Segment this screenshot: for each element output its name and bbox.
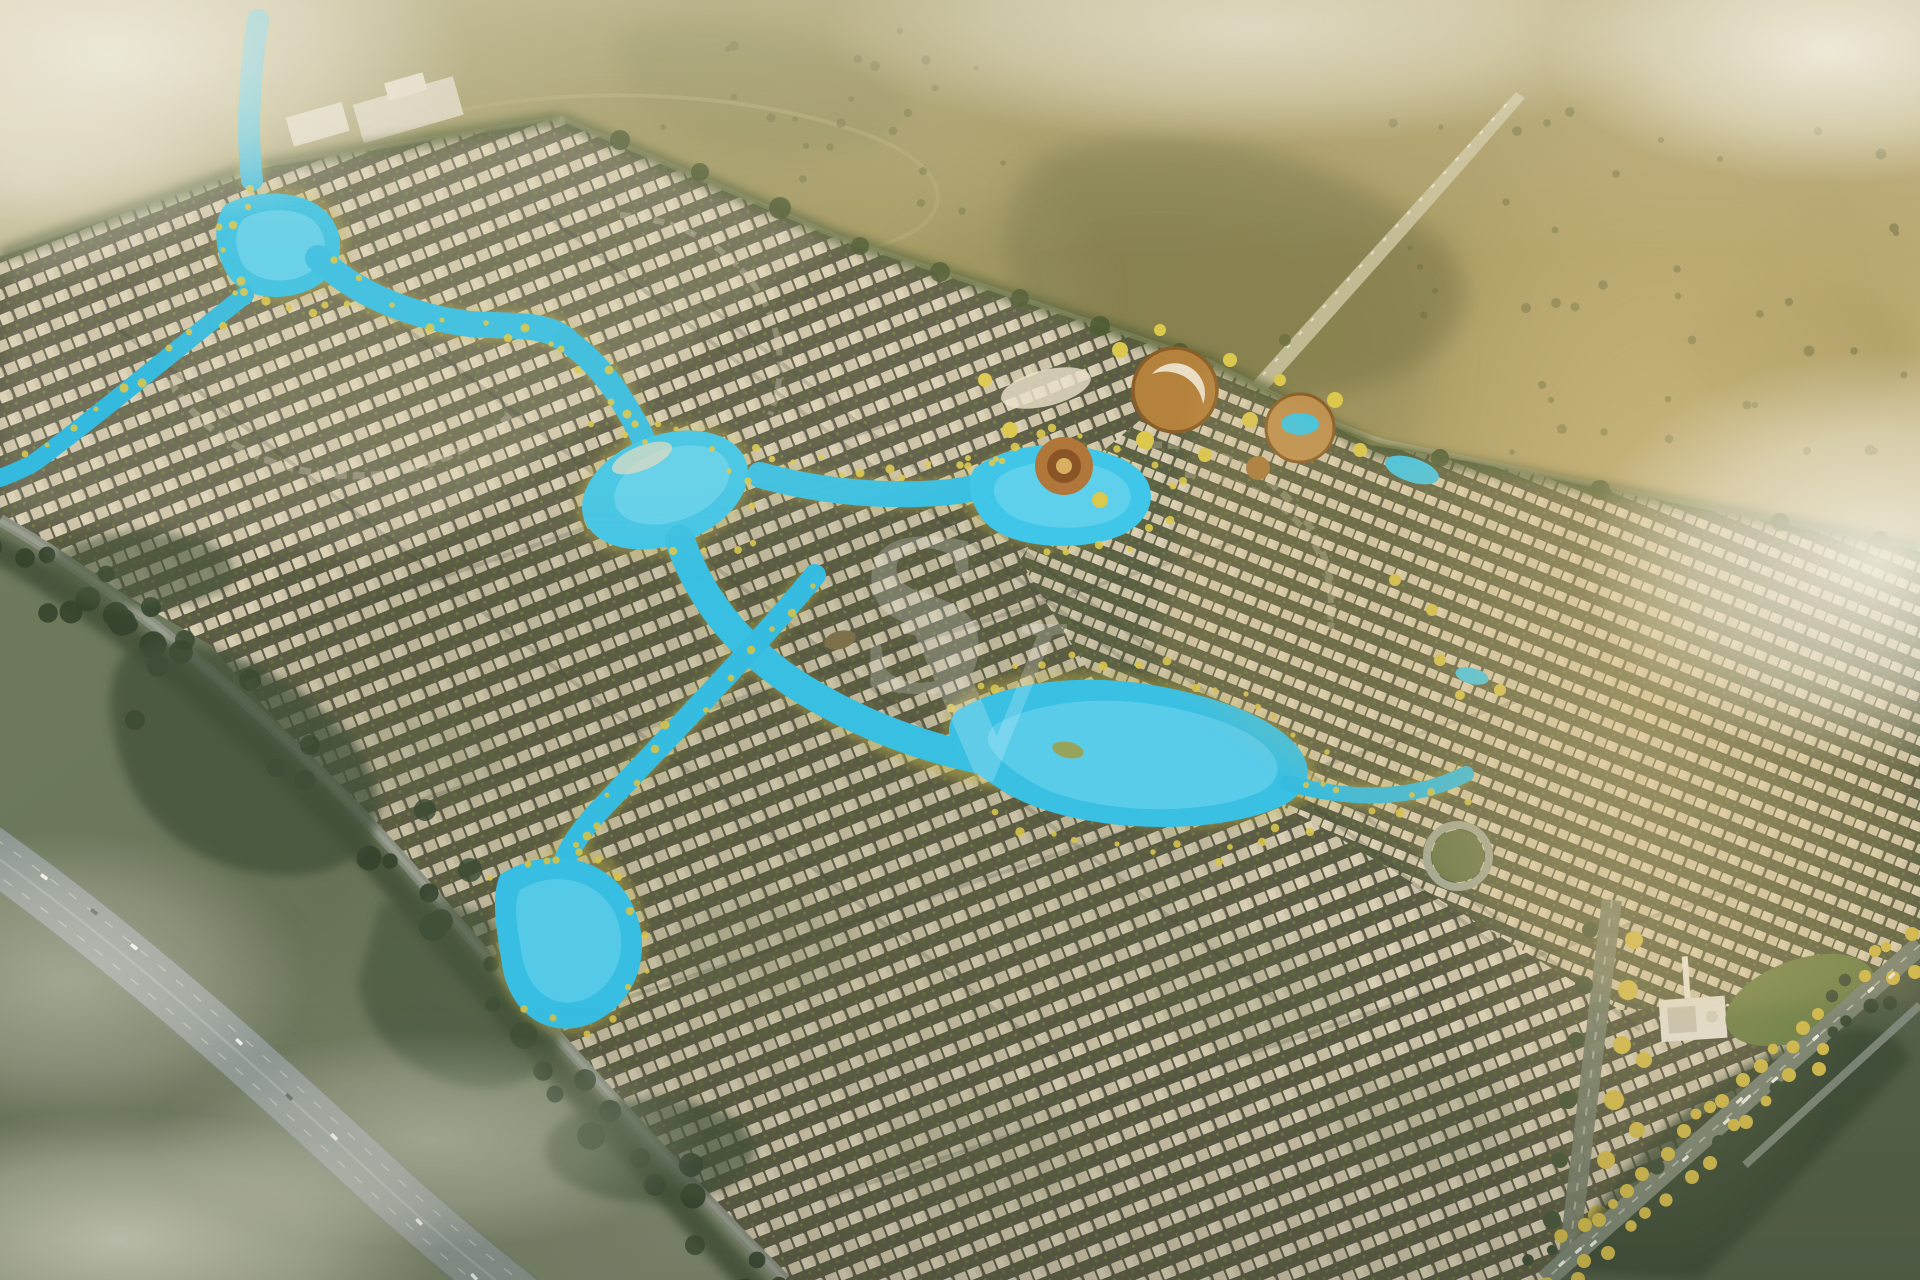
- svg-text:V: V: [900, 569, 1070, 829]
